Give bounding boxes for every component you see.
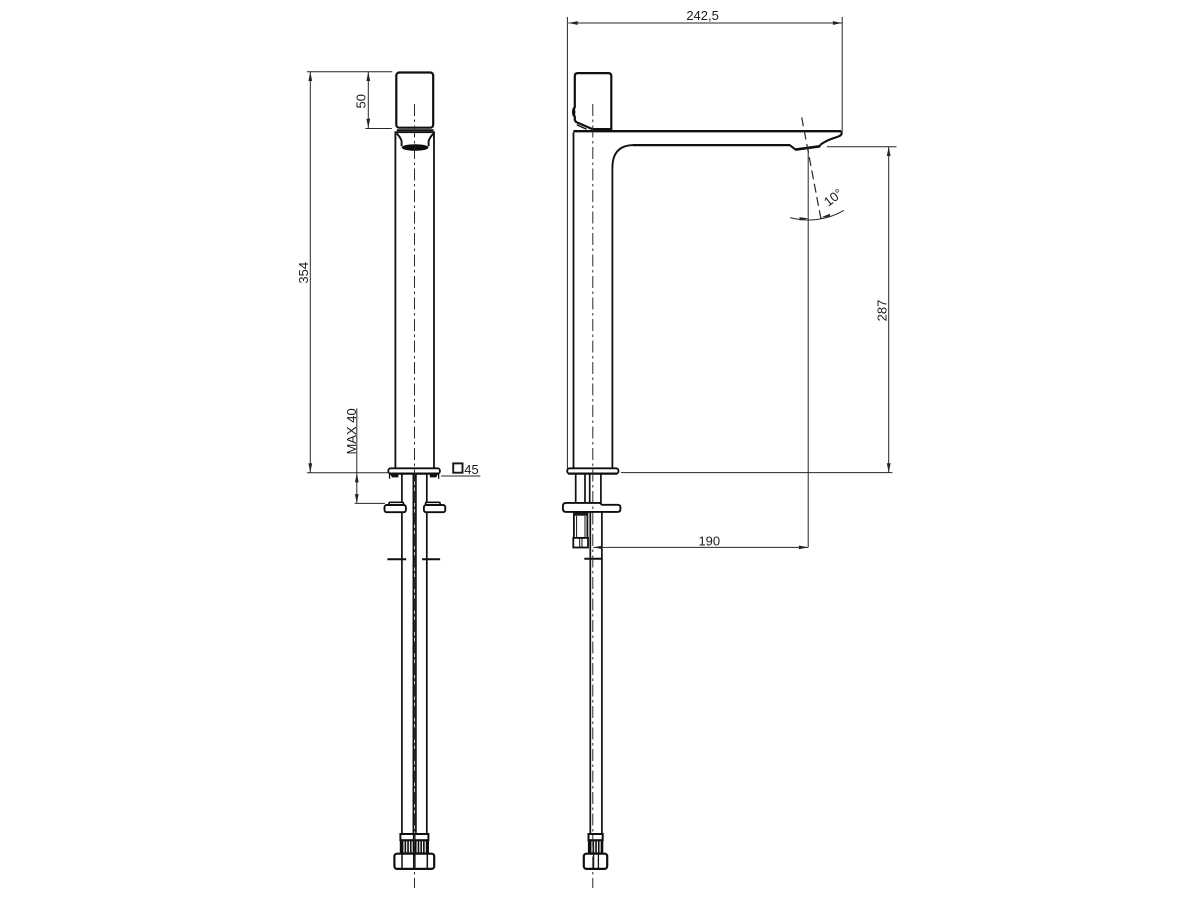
- svg-text:242,5: 242,5: [686, 8, 719, 23]
- svg-text:45: 45: [464, 462, 478, 477]
- svg-text:MAX 40: MAX 40: [344, 408, 359, 454]
- svg-text:50: 50: [353, 94, 368, 108]
- svg-text:287: 287: [874, 300, 889, 322]
- svg-text:354: 354: [296, 262, 311, 284]
- svg-text:190: 190: [698, 533, 720, 548]
